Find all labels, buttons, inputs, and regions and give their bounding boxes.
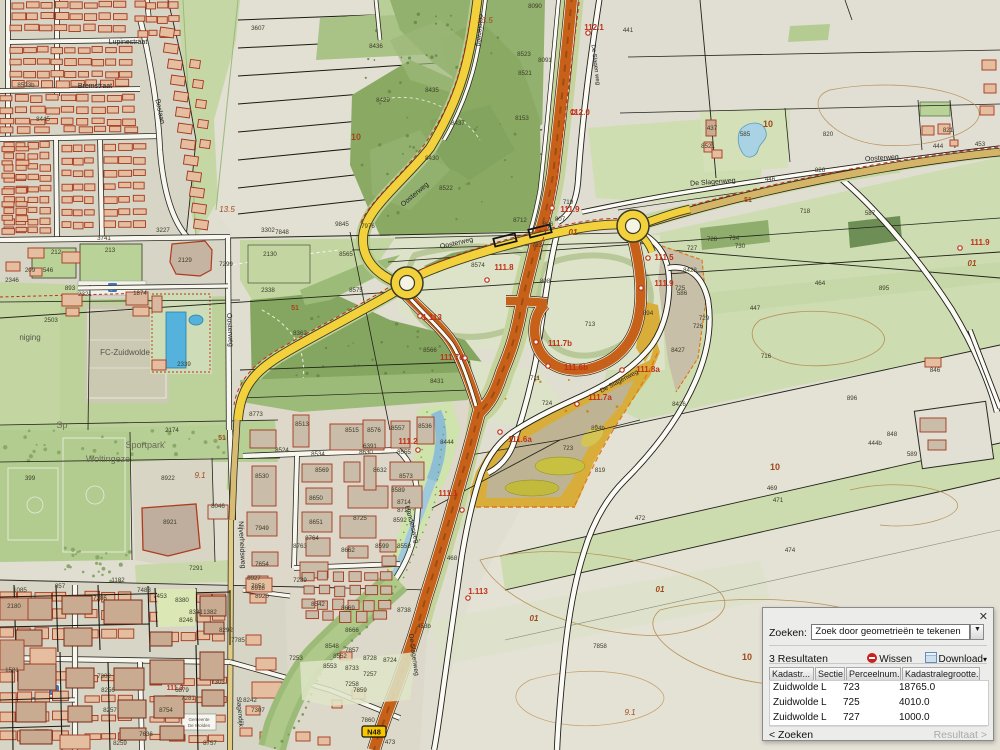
svg-text:8757: 8757 <box>203 740 217 747</box>
svg-text:8429: 8429 <box>376 97 390 104</box>
svg-text:8557: 8557 <box>391 425 405 432</box>
svg-text:niging: niging <box>19 333 40 342</box>
svg-text:3227: 3227 <box>156 227 170 234</box>
svg-text:8715: 8715 <box>397 507 411 514</box>
svg-text:2503: 2503 <box>44 317 58 324</box>
svg-text:2346: 2346 <box>5 277 19 284</box>
svg-text:8728: 8728 <box>363 655 377 662</box>
svg-text:9.1: 9.1 <box>194 471 205 480</box>
svg-text:7785: 7785 <box>231 637 245 644</box>
svg-text:10: 10 <box>351 132 361 142</box>
svg-text:7291: 7291 <box>189 565 203 572</box>
svg-text:857: 857 <box>55 583 66 590</box>
svg-text:7289: 7289 <box>293 577 307 584</box>
svg-text:Woltingeze: Woltingeze <box>86 454 130 464</box>
svg-text:8651: 8651 <box>309 519 323 526</box>
svg-text:8445: 8445 <box>36 116 50 123</box>
svg-text:8091: 8091 <box>538 57 552 64</box>
svg-text:895: 895 <box>879 285 890 292</box>
svg-text:3607: 3607 <box>251 25 265 32</box>
svg-text:7299: 7299 <box>219 261 233 268</box>
svg-text:7949: 7949 <box>255 525 269 532</box>
svg-text:51: 51 <box>218 435 226 442</box>
svg-text:894: 894 <box>643 310 654 317</box>
svg-text:7302: 7302 <box>97 673 111 680</box>
svg-text:8259: 8259 <box>113 740 127 747</box>
svg-text:111.7a: 111.7a <box>588 393 612 402</box>
svg-text:8436: 8436 <box>369 43 383 50</box>
svg-text:8522: 8522 <box>439 185 453 192</box>
svg-text:1.113: 1.113 <box>468 587 488 596</box>
svg-text:8630: 8630 <box>359 449 373 456</box>
svg-text:472: 472 <box>635 515 646 522</box>
svg-text:111.8a: 111.8a <box>636 365 660 374</box>
svg-text:111.9: 111.9 <box>970 238 990 247</box>
svg-text:8662: 8662 <box>341 547 355 554</box>
svg-text:8574: 8574 <box>471 262 485 269</box>
svg-text:8576: 8576 <box>367 427 381 434</box>
svg-text:8246: 8246 <box>179 617 193 624</box>
svg-text:7488: 7488 <box>137 587 151 594</box>
svg-text:734: 734 <box>729 235 740 242</box>
svg-text:8712: 8712 <box>513 217 527 224</box>
svg-text:2174: 2174 <box>165 427 179 434</box>
svg-text:111.1: 111.1 <box>438 489 458 498</box>
svg-text:1581: 1581 <box>5 667 19 674</box>
svg-text:8558: 8558 <box>397 543 411 550</box>
svg-text:447: 447 <box>750 305 761 312</box>
svg-text:8381: 8381 <box>189 609 203 616</box>
svg-text:111.8: 111.8 <box>494 263 514 272</box>
svg-text:473: 473 <box>385 739 396 746</box>
svg-text:471: 471 <box>773 497 784 504</box>
svg-text:01: 01 <box>530 614 539 623</box>
svg-text:13.5: 13.5 <box>219 205 235 214</box>
svg-text:8599: 8599 <box>375 543 389 550</box>
svg-text:8565: 8565 <box>339 251 353 258</box>
svg-text:2130: 2130 <box>263 251 277 258</box>
svg-text:546: 546 <box>43 267 54 274</box>
svg-text:8430: 8430 <box>425 155 439 162</box>
svg-text:808: 808 <box>540 278 551 285</box>
svg-text:7857: 7857 <box>345 647 359 654</box>
svg-text:8542: 8542 <box>311 601 325 608</box>
svg-text:8764: 8764 <box>305 535 319 542</box>
svg-text:7859: 7859 <box>353 687 367 694</box>
svg-text:724: 724 <box>542 400 553 407</box>
svg-text:8714: 8714 <box>397 499 411 506</box>
svg-text:8921: 8921 <box>163 519 177 526</box>
svg-text:10: 10 <box>770 462 780 472</box>
svg-text:826: 826 <box>815 167 826 174</box>
svg-text:N48: N48 <box>367 728 381 737</box>
svg-text:7257: 7257 <box>363 671 377 678</box>
svg-text:727: 727 <box>687 245 698 252</box>
svg-text:8927: 8927 <box>247 575 261 582</box>
svg-text:7860: 7860 <box>361 717 375 724</box>
svg-text:8548: 8548 <box>325 643 339 650</box>
svg-text:10: 10 <box>742 652 752 662</box>
svg-text:8426: 8426 <box>672 401 686 408</box>
svg-text:711: 711 <box>530 375 540 382</box>
svg-text:441: 441 <box>623 27 634 34</box>
svg-text:8724: 8724 <box>383 657 397 664</box>
svg-text:8437: 8437 <box>451 120 465 127</box>
svg-text:893: 893 <box>65 285 76 292</box>
svg-text:8444: 8444 <box>440 439 454 446</box>
svg-text:8569: 8569 <box>315 467 329 474</box>
svg-text:8292: 8292 <box>219 627 233 634</box>
svg-text:3302: 3302 <box>261 227 275 234</box>
svg-text:6879: 6879 <box>175 687 189 694</box>
svg-text:725: 725 <box>675 285 686 292</box>
svg-text:8523b: 8523b <box>17 82 35 89</box>
svg-text:8650: 8650 <box>309 495 323 502</box>
svg-text:112.0: 112.0 <box>570 108 590 117</box>
svg-text:589: 589 <box>907 451 918 458</box>
svg-text:8431: 8431 <box>430 378 444 385</box>
svg-text:8523: 8523 <box>517 51 531 58</box>
svg-text:7453: 7453 <box>153 593 167 600</box>
svg-text:51: 51 <box>291 305 299 312</box>
svg-text:7848: 7848 <box>275 229 289 236</box>
svg-text:728: 728 <box>707 236 718 243</box>
svg-text:8530: 8530 <box>255 473 269 480</box>
svg-text:585: 585 <box>740 131 751 138</box>
svg-text:8553: 8553 <box>323 663 337 670</box>
svg-text:807: 807 <box>555 216 566 223</box>
svg-text:7253: 7253 <box>289 655 303 662</box>
svg-text:821: 821 <box>943 127 954 134</box>
svg-text:8428: 8428 <box>683 267 697 274</box>
svg-text:8763: 8763 <box>293 543 307 550</box>
svg-text:212: 212 <box>51 249 62 256</box>
svg-text:209: 209 <box>25 267 36 274</box>
svg-text:7281: 7281 <box>181 695 195 702</box>
svg-text:8575: 8575 <box>349 287 363 294</box>
svg-text:819: 819 <box>595 467 606 474</box>
svg-text:1382: 1382 <box>203 609 217 616</box>
svg-text:8669: 8669 <box>341 605 355 612</box>
svg-text:1182: 1182 <box>111 577 125 584</box>
svg-text:01: 01 <box>569 228 578 237</box>
svg-text:111.7d: 111.7d <box>440 353 464 362</box>
svg-text:8090: 8090 <box>528 3 542 10</box>
svg-text:8589: 8589 <box>391 487 405 494</box>
svg-text:3741: 3741 <box>97 235 111 242</box>
svg-text:2338: 2338 <box>261 287 275 294</box>
svg-text:437: 437 <box>707 125 718 132</box>
svg-text:806: 806 <box>543 221 554 228</box>
svg-text:9.1: 9.1 <box>624 708 635 717</box>
svg-text:8362: 8362 <box>293 330 307 337</box>
svg-text:111.9: 111.9 <box>560 205 580 214</box>
svg-text:7303: 7303 <box>211 679 225 686</box>
svg-text:111.5: 111.5 <box>654 253 674 262</box>
svg-text:111.6a: 111.6a <box>508 435 532 444</box>
svg-text:8738: 8738 <box>397 607 411 614</box>
svg-text:469: 469 <box>767 485 778 492</box>
svg-text:9845: 9845 <box>335 221 349 228</box>
svg-text:7858: 7858 <box>593 643 607 650</box>
svg-text:7976: 7976 <box>361 223 375 230</box>
svg-text:733: 733 <box>532 242 543 249</box>
svg-text:8257: 8257 <box>103 707 117 714</box>
svg-text:8754: 8754 <box>159 707 173 714</box>
svg-text:De Wolden: De Wolden <box>188 723 211 728</box>
svg-text:453: 453 <box>975 141 986 148</box>
svg-text:7654: 7654 <box>255 561 269 568</box>
svg-text:726: 726 <box>693 323 704 330</box>
svg-text:8515: 8515 <box>345 427 359 434</box>
svg-text:8380: 8380 <box>175 597 189 604</box>
svg-text:111.7b: 111.7b <box>548 339 572 348</box>
svg-text:2339: 2339 <box>177 361 191 368</box>
svg-text:01: 01 <box>656 585 665 594</box>
svg-text:8666: 8666 <box>345 627 359 634</box>
svg-text:8521: 8521 <box>518 70 532 77</box>
svg-text:01: 01 <box>968 259 977 268</box>
svg-text:111.6b: 111.6b <box>564 363 588 372</box>
svg-text:468: 468 <box>447 555 458 562</box>
svg-text:8566: 8566 <box>423 347 437 354</box>
svg-text:8256: 8256 <box>101 687 115 694</box>
svg-text:8922: 8922 <box>161 475 175 482</box>
svg-text:2129: 2129 <box>178 257 192 264</box>
svg-text:8536: 8536 <box>418 423 432 430</box>
svg-text:1.113: 1.113 <box>422 313 442 322</box>
svg-text:8534: 8534 <box>311 451 325 458</box>
svg-text:713: 713 <box>585 321 596 328</box>
svg-text:474: 474 <box>785 547 796 554</box>
svg-text:1874: 1874 <box>133 290 147 297</box>
svg-text:846: 846 <box>930 367 941 374</box>
svg-text:8733: 8733 <box>345 665 359 672</box>
svg-text:Bremstraat: Bremstraat <box>78 83 112 90</box>
svg-text:51: 51 <box>744 197 752 204</box>
svg-text:446: 446 <box>765 176 776 183</box>
svg-text:894b: 894b <box>591 425 605 432</box>
svg-text:820: 820 <box>823 131 834 138</box>
svg-text:730: 730 <box>735 243 746 250</box>
svg-text:111.9: 111.9 <box>654 279 674 288</box>
svg-text:8046: 8046 <box>211 503 225 510</box>
svg-text:848: 848 <box>887 431 898 438</box>
svg-text:FC-Zuidwolde: FC-Zuidwolde <box>100 348 150 357</box>
svg-text:453b: 453b <box>417 623 431 630</box>
svg-text:10: 10 <box>763 119 773 129</box>
svg-text:8632: 8632 <box>373 467 387 474</box>
svg-text:723: 723 <box>563 445 574 452</box>
svg-text:112.1: 112.1 <box>584 23 604 32</box>
svg-text:8524: 8524 <box>275 447 289 454</box>
svg-text:8552: 8552 <box>333 653 347 660</box>
svg-text:8920: 8920 <box>255 593 269 600</box>
svg-text:2321: 2321 <box>78 291 92 298</box>
svg-text:111.2: 111.2 <box>398 437 418 446</box>
svg-text:444: 444 <box>933 143 944 150</box>
svg-text:719: 719 <box>563 199 574 206</box>
svg-text:399: 399 <box>25 475 36 482</box>
svg-text:587: 587 <box>865 210 876 217</box>
svg-text:444b: 444b <box>868 440 882 447</box>
svg-text:8918: 8918 <box>251 585 265 592</box>
svg-text:2180: 2180 <box>7 603 21 610</box>
svg-text:Sportpark: Sportpark <box>125 440 165 450</box>
svg-text:8427: 8427 <box>671 347 685 354</box>
svg-text:7636: 7636 <box>139 731 153 738</box>
svg-text:8725: 8725 <box>353 515 367 522</box>
svg-text:Sp: Sp <box>56 420 67 430</box>
svg-text:8513: 8513 <box>295 421 309 428</box>
svg-text:7258: 7258 <box>345 681 359 688</box>
svg-text:718: 718 <box>800 208 811 215</box>
svg-text:Lupinestraat: Lupinestraat <box>109 39 148 46</box>
svg-text:8573: 8573 <box>399 473 413 480</box>
svg-text:729: 729 <box>699 315 710 322</box>
svg-text:8242: 8242 <box>243 697 257 704</box>
svg-text:8435: 8435 <box>425 87 439 94</box>
svg-text:7307: 7307 <box>251 707 265 714</box>
svg-text:8773: 8773 <box>249 411 263 418</box>
svg-text:Gemeente: Gemeente <box>188 717 210 722</box>
svg-text:7286: 7286 <box>93 595 107 602</box>
svg-text:1085: 1085 <box>13 587 27 594</box>
svg-text:464: 464 <box>815 280 826 287</box>
svg-text:896: 896 <box>847 395 858 402</box>
svg-text:8592: 8592 <box>393 517 407 524</box>
svg-text:8153: 8153 <box>515 115 529 122</box>
svg-text:716: 716 <box>761 353 772 360</box>
svg-text:213: 213 <box>105 247 116 254</box>
svg-text:8521: 8521 <box>701 143 715 150</box>
svg-text:8555: 8555 <box>397 449 411 456</box>
